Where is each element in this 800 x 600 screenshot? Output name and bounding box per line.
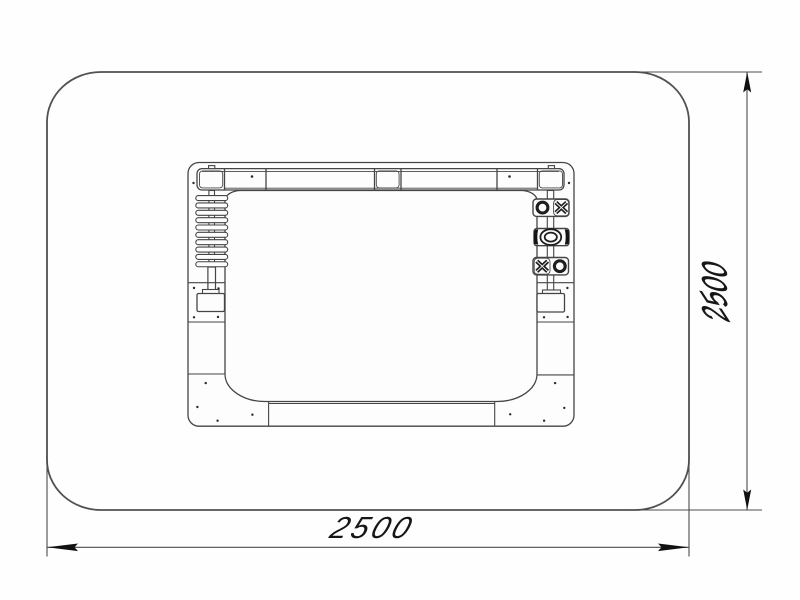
- svg-text:2500: 2500: [325, 510, 420, 545]
